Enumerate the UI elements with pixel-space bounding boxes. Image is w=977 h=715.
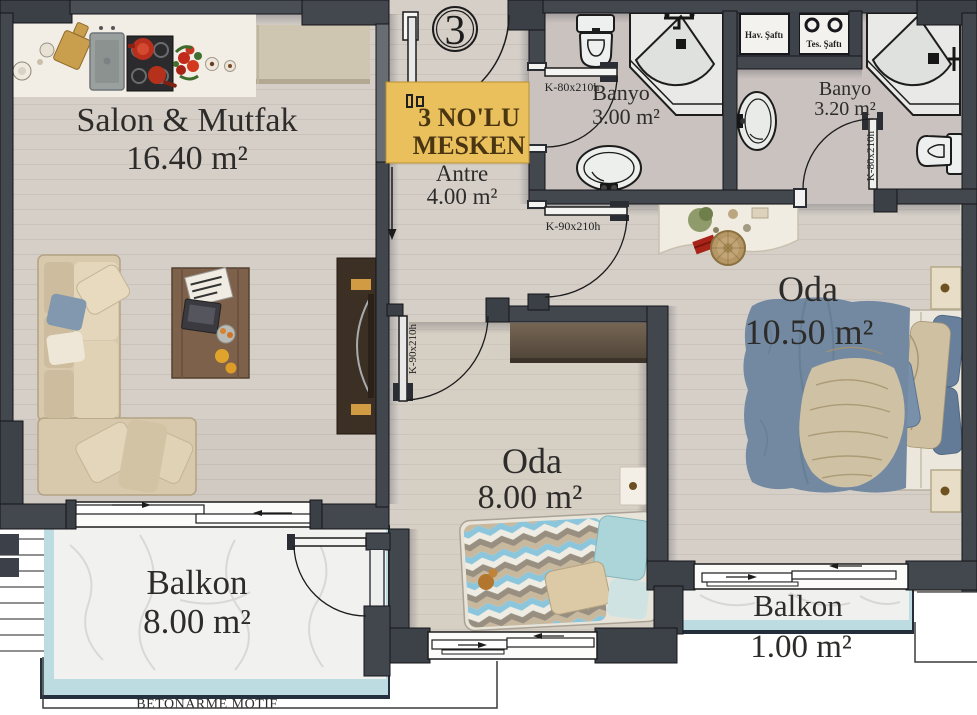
svg-text:Banyo: Banyo <box>592 80 649 105</box>
svg-text:3: 3 <box>445 8 466 54</box>
svg-text:K-90x210h: K-90x210h <box>546 219 601 233</box>
svg-text:Balkon: Balkon <box>146 563 247 602</box>
svg-text:3.00 m²: 3.00 m² <box>592 104 660 129</box>
svg-text:BETONARME MOTİF: BETONARME MOTİF <box>136 696 277 712</box>
svg-text:Oda: Oda <box>502 441 562 481</box>
svg-text:Balkon: Balkon <box>753 588 843 623</box>
svg-text:Banyo: Banyo <box>819 78 871 100</box>
svg-text:Oda: Oda <box>778 269 838 309</box>
svg-text:8.00 m²: 8.00 m² <box>478 479 583 516</box>
svg-text:3.20 m²: 3.20 m² <box>814 98 876 120</box>
svg-text:16.40 m²: 16.40 m² <box>126 140 248 177</box>
svg-text:K-80x210h: K-80x210h <box>865 130 877 181</box>
svg-text:Salon & Mutfak: Salon & Mutfak <box>77 102 298 139</box>
svg-text:4.00 m²: 4.00 m² <box>427 184 498 209</box>
svg-text:Antre: Antre <box>436 161 488 186</box>
svg-text:Tes. Şaftı: Tes. Şaftı <box>806 39 842 49</box>
svg-text:K-80x210h: K-80x210h <box>545 80 600 94</box>
svg-text:3 NO'LU: 3 NO'LU <box>418 103 520 132</box>
svg-text:8.00 m²: 8.00 m² <box>143 602 251 641</box>
svg-text:Hav. Şaftı: Hav. Şaftı <box>745 30 784 40</box>
svg-text:MESKEN: MESKEN <box>413 131 526 160</box>
svg-text:K-90x210h: K-90x210h <box>407 323 419 374</box>
svg-text:1.00 m²: 1.00 m² <box>750 629 852 665</box>
svg-text:10.50 m²: 10.50 m² <box>745 312 874 352</box>
